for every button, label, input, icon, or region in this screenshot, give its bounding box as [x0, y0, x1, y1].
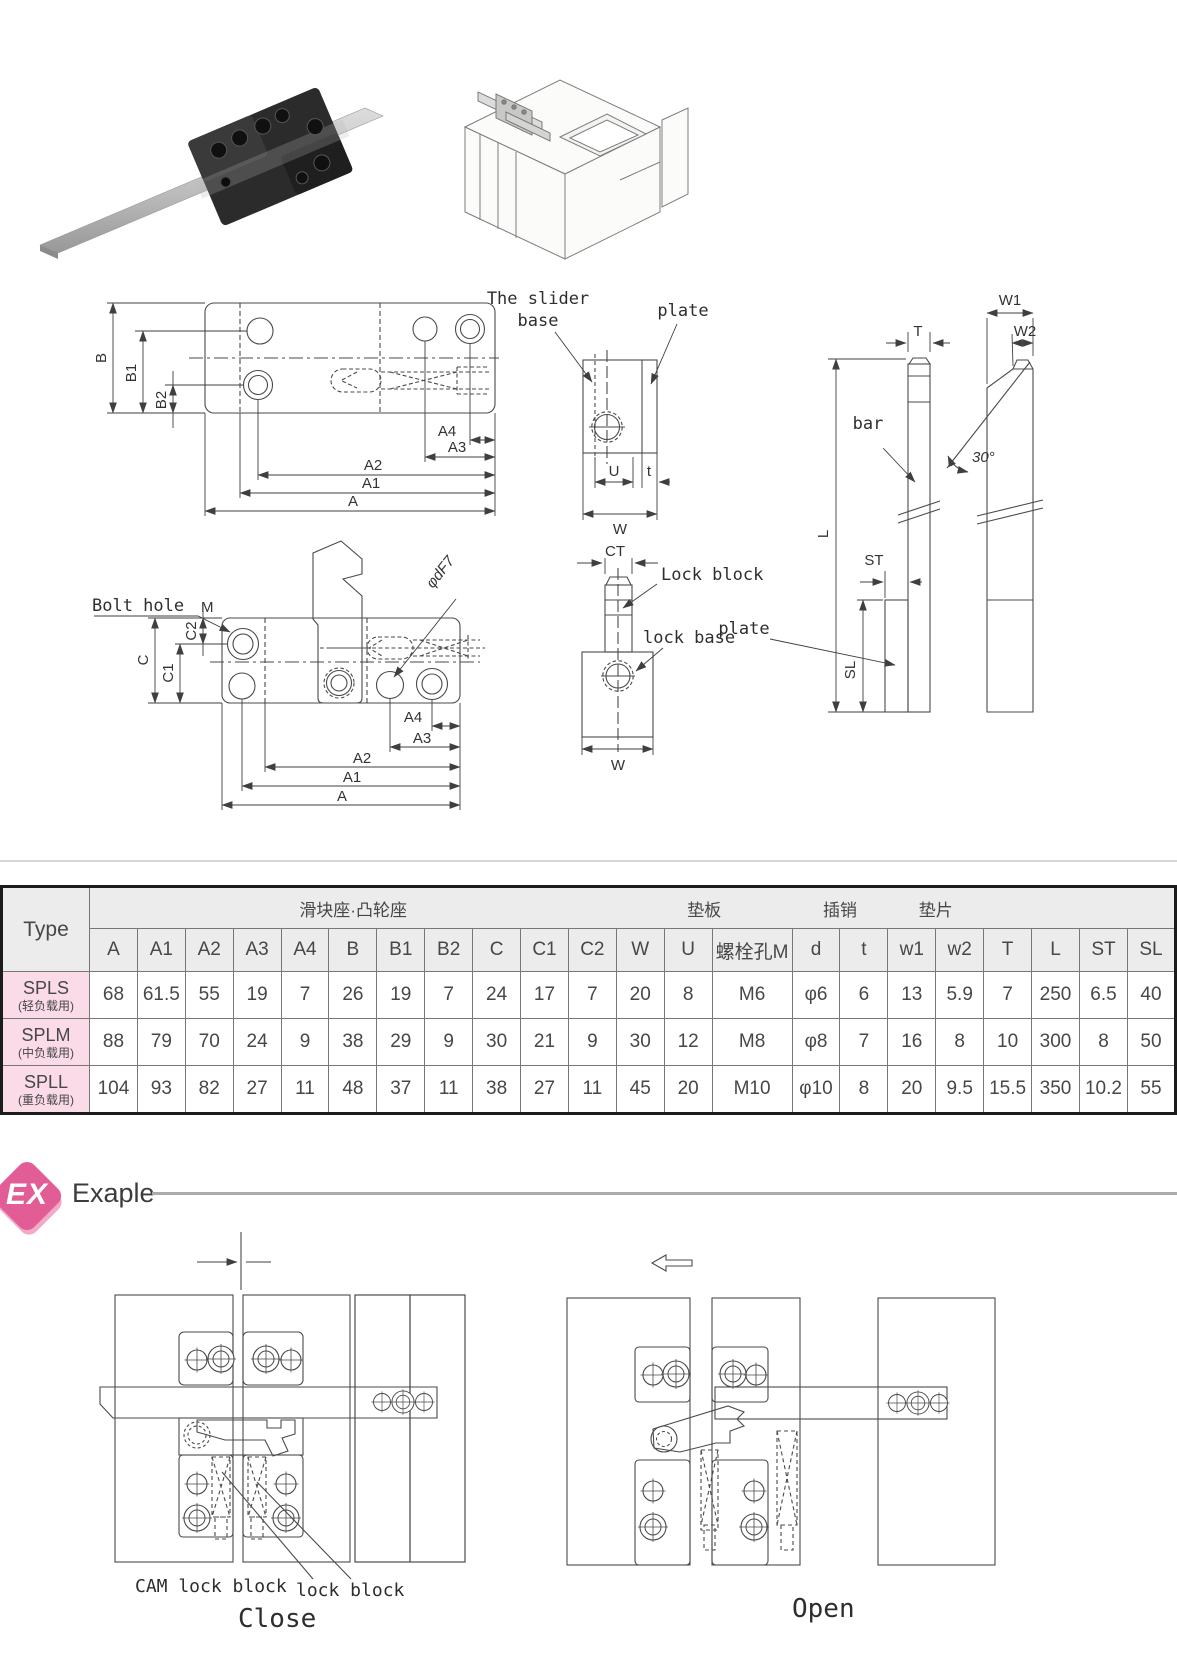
- col-header: A: [90, 929, 138, 972]
- spec-value: 38: [473, 1066, 521, 1114]
- spec-value: 8: [840, 1066, 888, 1114]
- spec-table: Type滑块座·凸轮座垫板插销垫片AA1A2A3A4BB1B2CC1C2WU螺栓…: [0, 885, 1177, 1115]
- spec-value: 8: [936, 1019, 984, 1066]
- col-header: C1: [521, 929, 569, 972]
- label-open: Open: [792, 1594, 855, 1624]
- spec-value: 7: [281, 972, 329, 1019]
- spec-value: 26: [329, 972, 377, 1019]
- lock-pins-hidden: [212, 1457, 266, 1539]
- col-header: B2: [425, 929, 473, 972]
- spec-value: 79: [137, 1019, 185, 1066]
- mold-plate-right: [878, 1298, 995, 1565]
- label-plate: plate: [718, 619, 769, 639]
- label-phi-d-f7: φdF7: [423, 552, 459, 591]
- label-bolt-hole-m: M: [201, 599, 214, 616]
- col-header: C: [473, 929, 521, 972]
- close-state-figure: [85, 1232, 480, 1579]
- bar-side-drawings: T L bar ST SL plate W1 W2 30°: [700, 272, 1177, 730]
- dim-A1: A1: [362, 475, 380, 492]
- spec-value: 6: [840, 972, 888, 1019]
- product-photo: [20, 40, 420, 265]
- spec-value: 50: [1127, 1019, 1175, 1066]
- dim-W: W: [611, 757, 626, 774]
- group-header: [984, 887, 1176, 929]
- spec-value: M6: [712, 972, 792, 1019]
- col-header: t: [840, 929, 888, 972]
- col-header: ST: [1080, 929, 1128, 972]
- cam-lock-block-closed: [197, 1420, 295, 1456]
- group-header: 滑块座·凸轮座: [90, 887, 617, 929]
- group-header: 垫板: [616, 887, 792, 929]
- spec-value: 21: [521, 1019, 569, 1066]
- spec-value: 20: [616, 972, 664, 1019]
- spec-value: 40: [1127, 972, 1175, 1019]
- spec-value: 250: [1032, 972, 1080, 1019]
- label-bar: bar: [853, 414, 884, 434]
- spec-value: 11: [281, 1066, 329, 1114]
- spec-value: 9: [568, 1019, 616, 1066]
- col-header: A2: [185, 929, 233, 972]
- spec-value: 30: [473, 1019, 521, 1066]
- spec-value: 16: [888, 1019, 936, 1066]
- spec-value: 24: [473, 972, 521, 1019]
- spec-value: 19: [377, 972, 425, 1019]
- spec-value: 27: [233, 1066, 281, 1114]
- dim-B2: B2: [153, 391, 170, 409]
- mold-plate-left: [567, 1298, 690, 1565]
- cam-base-plan-drawing: Bolt hole M φdF7 C C1 C2 A4 A3 A2 A1 A: [80, 515, 500, 815]
- dim-A1: A1: [343, 769, 361, 786]
- spec-value: 17: [521, 972, 569, 1019]
- col-header: A1: [137, 929, 185, 972]
- spec-value: 38: [329, 1019, 377, 1066]
- dim-C: C: [135, 654, 152, 665]
- dim-CT: CT: [605, 543, 625, 560]
- spec-value: 7: [568, 972, 616, 1019]
- col-header: w2: [936, 929, 984, 972]
- spec-value: 12: [664, 1019, 712, 1066]
- dim-A4: A4: [438, 423, 456, 440]
- spec-value: 7: [840, 1019, 888, 1066]
- dim-C2: C2: [183, 621, 200, 640]
- spec-value: 27: [521, 1066, 569, 1114]
- row-type: SPLM(中负载用): [2, 1019, 90, 1066]
- dim-SL: SL: [842, 661, 859, 679]
- dim-C1: C1: [160, 663, 177, 682]
- spec-value: 11: [425, 1066, 473, 1114]
- col-header: A4: [281, 929, 329, 972]
- label-bolt-hole: Bolt hole: [92, 596, 184, 616]
- col-header: B: [329, 929, 377, 972]
- spec-value: φ10: [792, 1066, 840, 1114]
- spec-value: 7: [425, 972, 473, 1019]
- spec-value: 10.2: [1080, 1066, 1128, 1114]
- spec-value: 5.9: [936, 972, 984, 1019]
- spec-value: 93: [137, 1066, 185, 1114]
- dim-A: A: [348, 493, 358, 510]
- spec-value: 19: [233, 972, 281, 1019]
- spec-value: 10: [984, 1019, 1032, 1066]
- spec-value: 15.5: [984, 1066, 1032, 1114]
- badge-text: EX: [0, 1178, 65, 1212]
- mold-isometric-drawing: [410, 42, 700, 270]
- label-slider-base-1: The slider: [487, 289, 589, 309]
- dim-A2: A2: [364, 457, 382, 474]
- spec-value: φ8: [792, 1019, 840, 1066]
- spec-value: 6.5: [1080, 972, 1128, 1019]
- spec-value: 9: [425, 1019, 473, 1066]
- dim-ST: ST: [864, 552, 883, 569]
- spec-value: 29: [377, 1019, 425, 1066]
- dim-W1: W1: [999, 292, 1022, 309]
- label-lock-block: lock block: [296, 1580, 404, 1601]
- spec-value: 82: [185, 1066, 233, 1114]
- col-header: C2: [568, 929, 616, 972]
- section-divider: [0, 860, 1177, 862]
- spec-value: 13: [888, 972, 936, 1019]
- col-header: 螺栓孔M: [712, 929, 792, 972]
- spec-value: 9.5: [936, 1066, 984, 1114]
- col-header: U: [664, 929, 712, 972]
- cam-lock-block-open: [653, 1406, 744, 1452]
- col-header: B1: [377, 929, 425, 972]
- dim-t: t: [647, 463, 652, 480]
- label-slider-base-2: base: [518, 311, 559, 331]
- dim-A: A: [337, 788, 347, 805]
- example-badge: EX: [0, 1158, 65, 1234]
- dim-U: U: [609, 463, 620, 480]
- row-type: SPLS(轻负载用): [2, 972, 90, 1019]
- spec-value: 61.5: [137, 972, 185, 1019]
- col-header: L: [1032, 929, 1080, 972]
- table-row: SPLL(重负载用)104938227114837113827114520M10…: [2, 1066, 1176, 1114]
- spec-value: 70: [185, 1019, 233, 1066]
- spec-value: 30: [616, 1019, 664, 1066]
- spec-value: 350: [1032, 1066, 1080, 1114]
- table-row: SPLM(中负载用)88797024938299302193012M8φ8716…: [2, 1019, 1176, 1066]
- spec-value: 8: [1080, 1019, 1128, 1066]
- spec-value: 7: [984, 972, 1032, 1019]
- dim-A3: A3: [413, 730, 431, 747]
- spec-value: 300: [1032, 1019, 1080, 1066]
- row-type: SPLL(重负载用): [2, 1066, 90, 1114]
- spec-value: φ6: [792, 972, 840, 1019]
- spec-value: 37: [377, 1066, 425, 1114]
- spec-value: M10: [712, 1066, 792, 1114]
- spec-value: 45: [616, 1066, 664, 1114]
- dim-A4: A4: [404, 709, 422, 726]
- example-heading: Exaple: [72, 1178, 155, 1209]
- cam-lock-block-shape: [313, 541, 362, 703]
- group-header: 插销: [792, 887, 888, 929]
- spec-value: 20: [888, 1066, 936, 1114]
- spec-value: 9: [281, 1019, 329, 1066]
- spec-value: M8: [712, 1019, 792, 1066]
- example-heading-rule: [152, 1192, 1177, 1195]
- slider-base-plan-drawing: B B1 B2 A4 A3 A2 A1 A: [85, 285, 500, 527]
- spec-value: 88: [90, 1019, 138, 1066]
- dim-A2: A2: [353, 750, 371, 767]
- catalog-page: B B1 B2 A4 A3 A2 A1 A The slider base: [0, 0, 1177, 1661]
- dim-L: L: [815, 530, 832, 538]
- dim-B1: B1: [123, 364, 140, 382]
- dim-W2: W2: [1014, 323, 1037, 340]
- col-header: d: [792, 929, 840, 972]
- spec-value: 24: [233, 1019, 281, 1066]
- group-header: 垫片: [888, 887, 984, 929]
- label-cam-lock-block: CAM lock block: [135, 1576, 287, 1597]
- col-header: A3: [233, 929, 281, 972]
- col-header-type: Type: [2, 887, 90, 972]
- dim-angle-30: 30°: [972, 449, 995, 466]
- label-close: Close: [238, 1604, 316, 1634]
- col-header: T: [984, 929, 1032, 972]
- latch-block: [180, 83, 363, 230]
- spec-value: 104: [90, 1066, 138, 1114]
- spec-value: 8: [664, 972, 712, 1019]
- dim-B: B: [93, 353, 110, 363]
- table-row: SPLS(轻负载用)6861.5551972619724177208M6φ661…: [2, 972, 1176, 1019]
- spec-value: 55: [185, 972, 233, 1019]
- col-header: w1: [888, 929, 936, 972]
- spec-table-section: Type滑块座·凸轮座垫板插销垫片AA1A2A3A4BB1B2CC1C2WU螺栓…: [0, 885, 1177, 1115]
- open-direction-arrow-icon: [652, 1255, 692, 1271]
- spec-value: 68: [90, 972, 138, 1019]
- col-header: SL: [1127, 929, 1175, 972]
- dim-T: T: [913, 323, 922, 340]
- col-header: W: [616, 929, 664, 972]
- spec-value: 20: [664, 1066, 712, 1114]
- spec-value: 55: [1127, 1066, 1175, 1114]
- spec-value: 11: [568, 1066, 616, 1114]
- open-state-figure: [540, 1235, 1010, 1570]
- spec-value: 48: [329, 1066, 377, 1114]
